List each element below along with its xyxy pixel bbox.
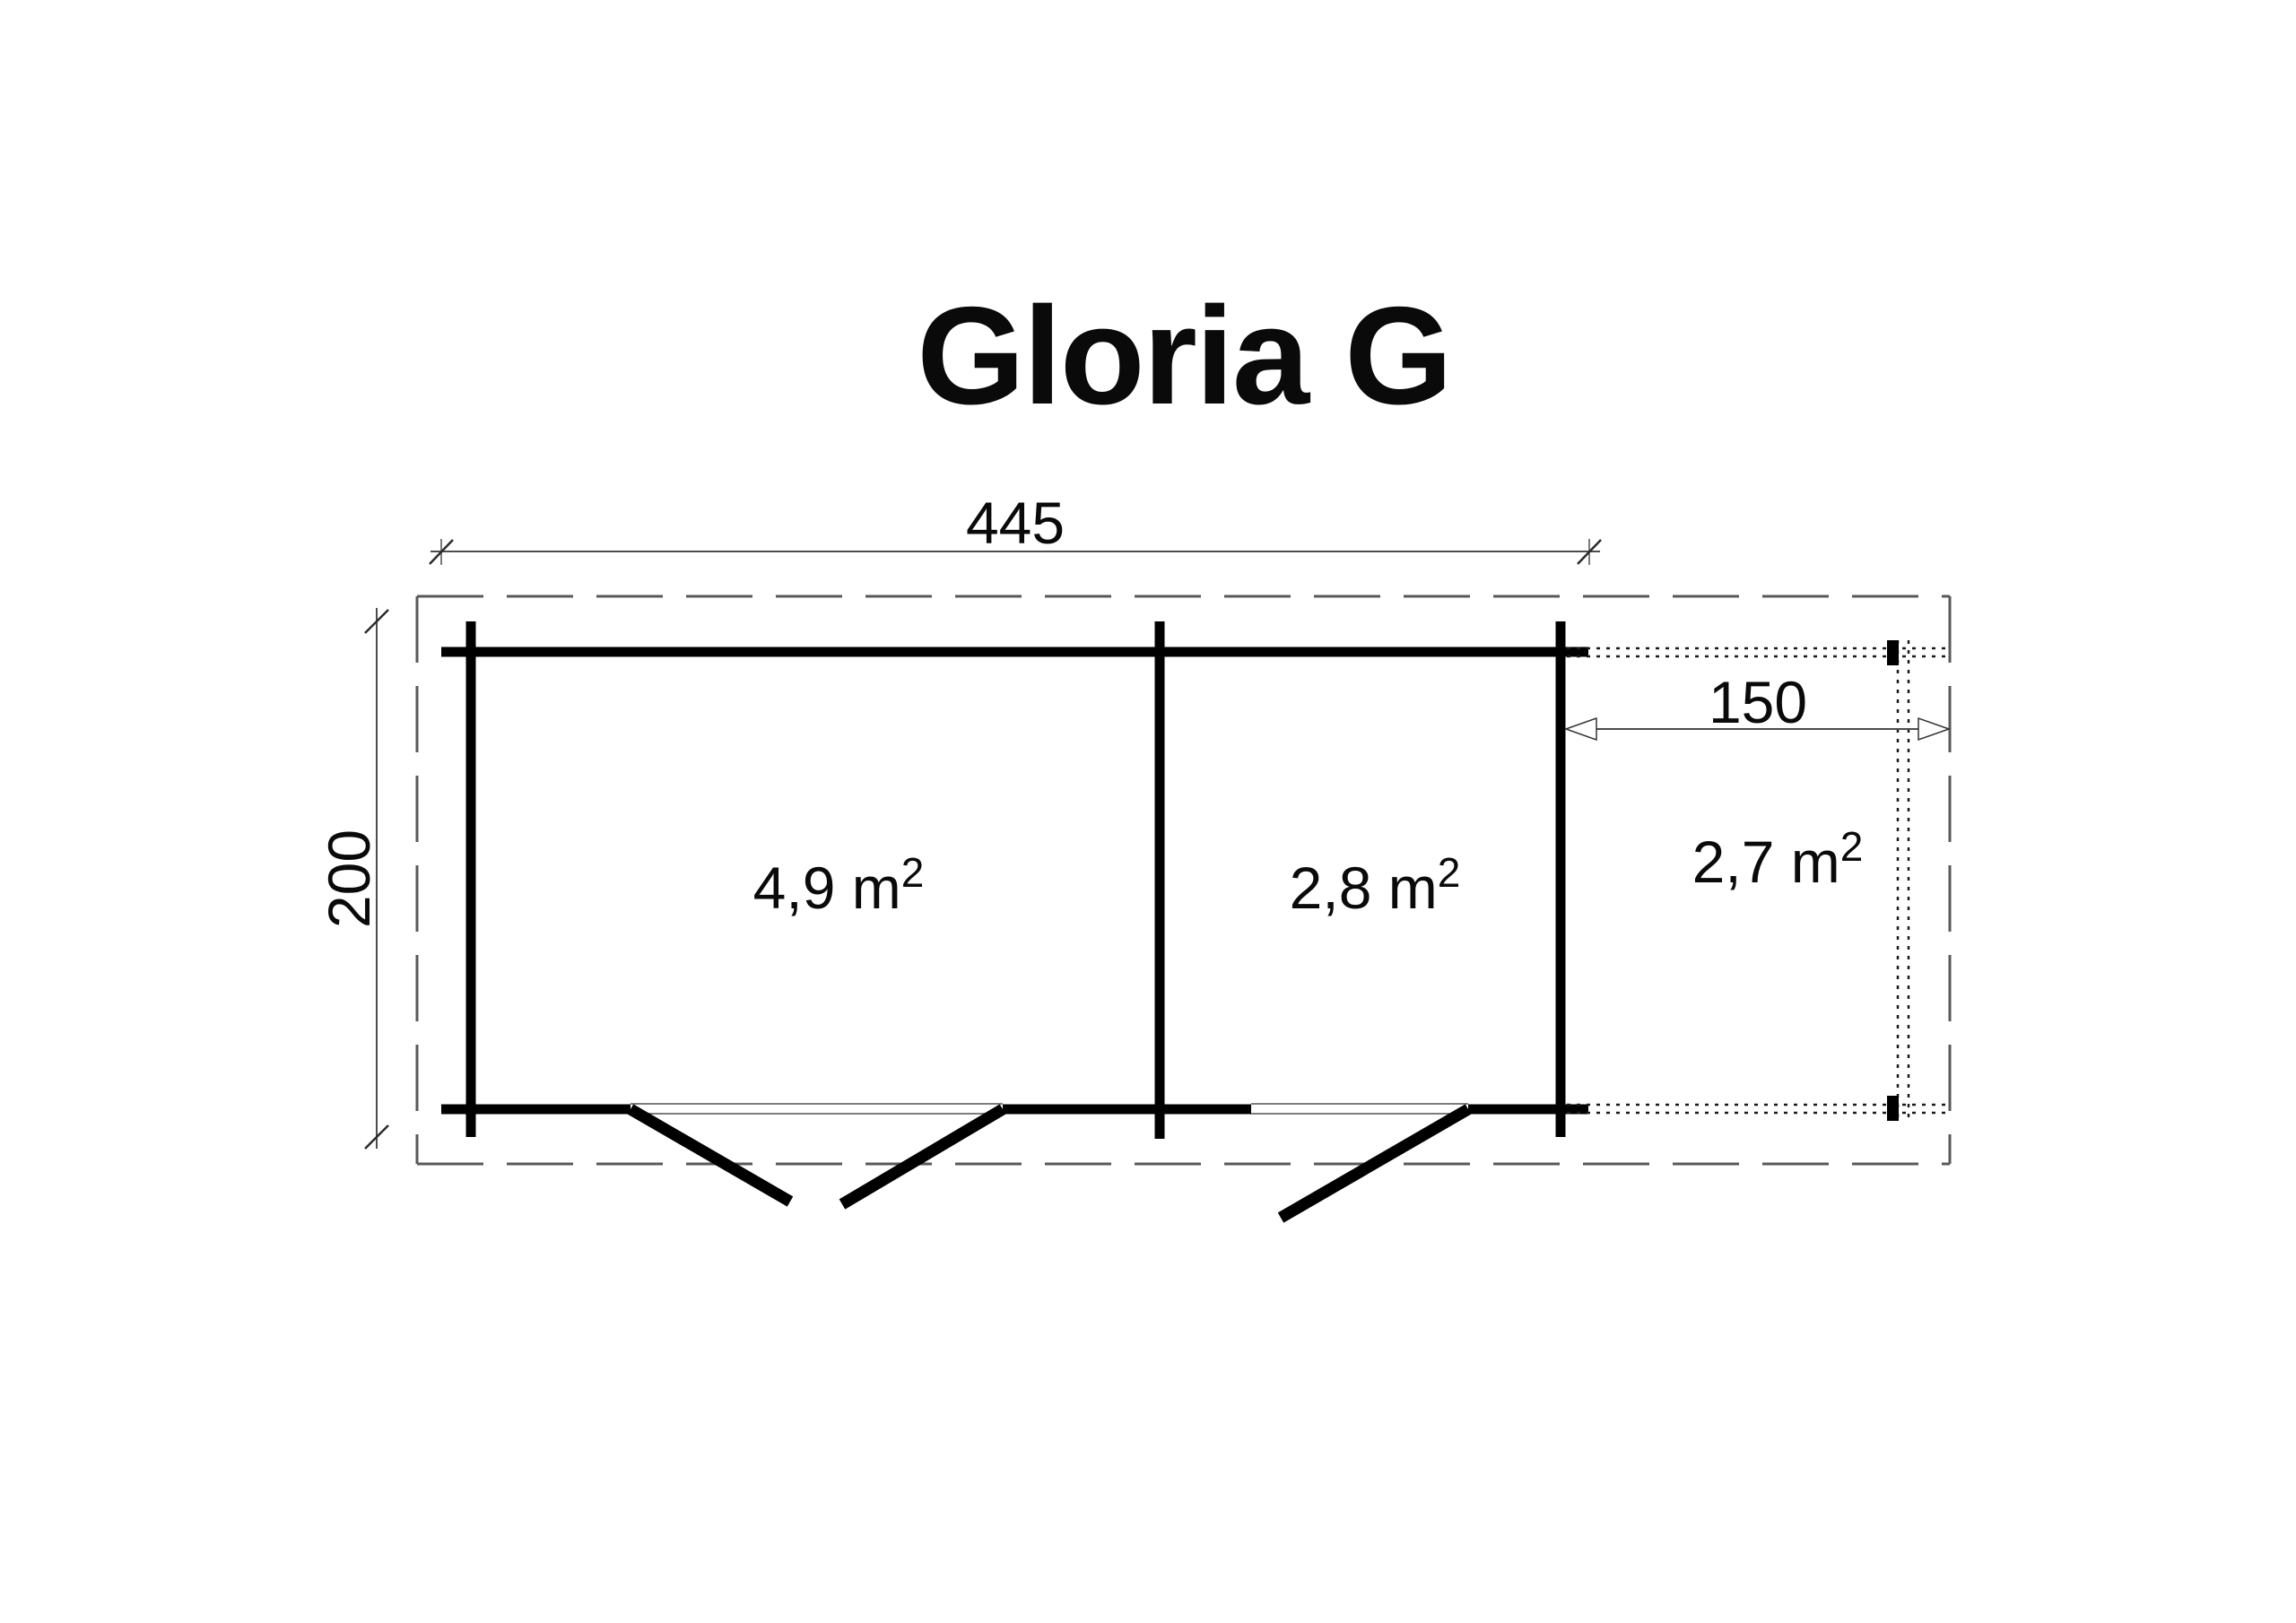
dimension-terrace-depth: 150: [1566, 669, 1949, 740]
dim-150-left-arrow: [1566, 718, 1596, 740]
room-labels: 4,9 m2 2,8 m2 2,7 m2: [753, 823, 1864, 921]
side-room-area-value: 2,8 m: [1290, 855, 1438, 921]
terrace-post-top: [1887, 640, 1899, 665]
floor-plan-page: Gloria G: [0, 0, 2296, 1623]
terrace-post-bottom: [1887, 1096, 1899, 1121]
floor-plan-drawing: Gloria G: [0, 0, 2296, 1623]
dimension-overall-width: 445: [430, 490, 1601, 565]
terrace-area-sup: 2: [1840, 823, 1864, 870]
dim-200-label: 200: [316, 829, 382, 928]
dim-445-label: 445: [966, 490, 1065, 556]
main-room-area-sup: 2: [901, 849, 925, 896]
dimension-overall-depth: 200: [316, 608, 388, 1149]
side-room-area-label: 2,8 m2: [1290, 849, 1461, 921]
plan-title: Gloria G: [917, 278, 1451, 433]
terrace-area-label: 2,7 m2: [1692, 823, 1864, 895]
main-room-area-value: 4,9 m: [753, 855, 901, 921]
side-room-area-sup: 2: [1438, 849, 1461, 896]
dim-150-label: 150: [1709, 669, 1807, 735]
terrace-area-value: 2,7 m: [1692, 829, 1840, 895]
double-door-right-leaf: [842, 1109, 1003, 1204]
main-room-area-label: 4,9 m2: [753, 849, 925, 921]
dim-150-right-arrow: [1918, 718, 1949, 740]
double-door-left-leaf: [631, 1109, 790, 1202]
